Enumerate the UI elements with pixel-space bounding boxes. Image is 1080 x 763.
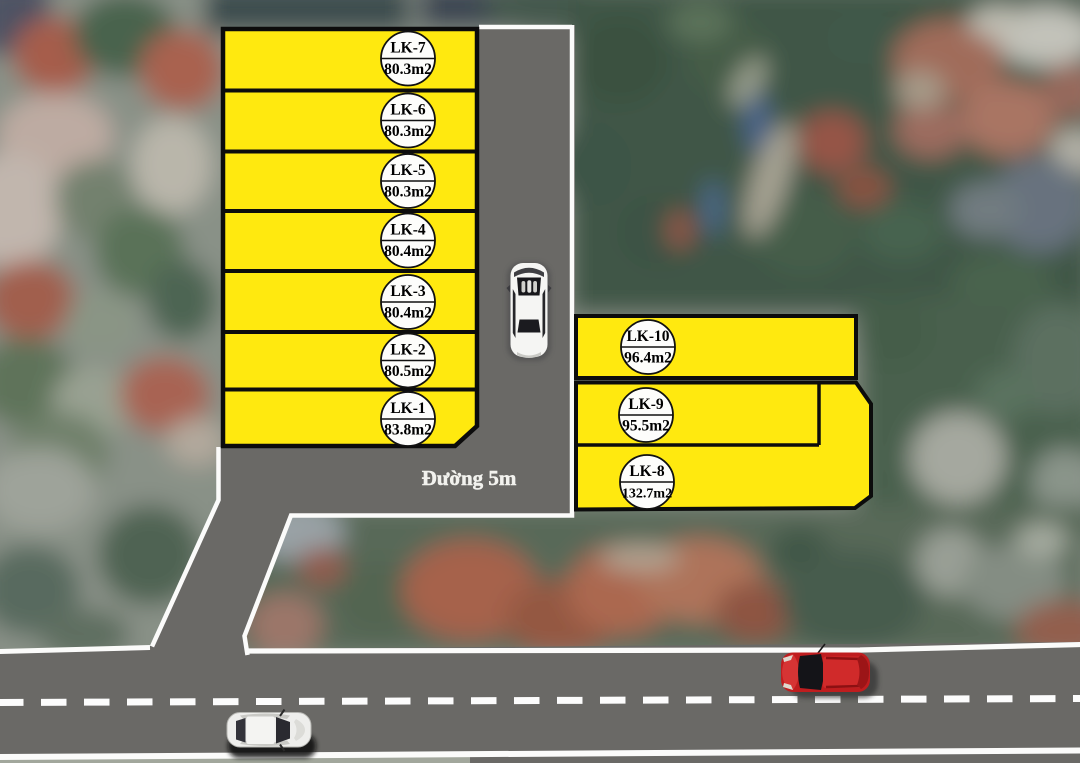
svg-text:80.4m2: 80.4m2 [384,243,432,260]
svg-text:LK-5: LK-5 [390,162,426,179]
svg-text:80.4m2: 80.4m2 [384,305,432,322]
svg-text:LK-2: LK-2 [390,342,426,359]
svg-text:80.3m2: 80.3m2 [384,123,432,140]
svg-text:LK-7: LK-7 [390,40,426,57]
svg-text:LK-1: LK-1 [390,400,425,417]
svg-text:80.3m2: 80.3m2 [384,61,432,78]
svg-text:LK-3: LK-3 [390,283,426,300]
svg-text:Đường 5m: Đường 5m [422,466,517,490]
svg-text:95.5m2: 95.5m2 [622,418,670,435]
svg-text:LK-8: LK-8 [629,463,665,480]
svg-text:80.3m2: 80.3m2 [384,184,432,201]
svg-text:83.8m2: 83.8m2 [384,422,432,439]
svg-text:LK-4: LK-4 [390,222,426,239]
svg-text:80.5m2: 80.5m2 [384,363,432,380]
svg-text:132.7m2: 132.7m2 [622,487,672,502]
svg-text:LK-9: LK-9 [628,396,664,413]
svg-text:96.4m2: 96.4m2 [624,350,672,367]
svg-text:LK-10: LK-10 [626,328,669,345]
svg-text:LK-6: LK-6 [390,102,426,119]
